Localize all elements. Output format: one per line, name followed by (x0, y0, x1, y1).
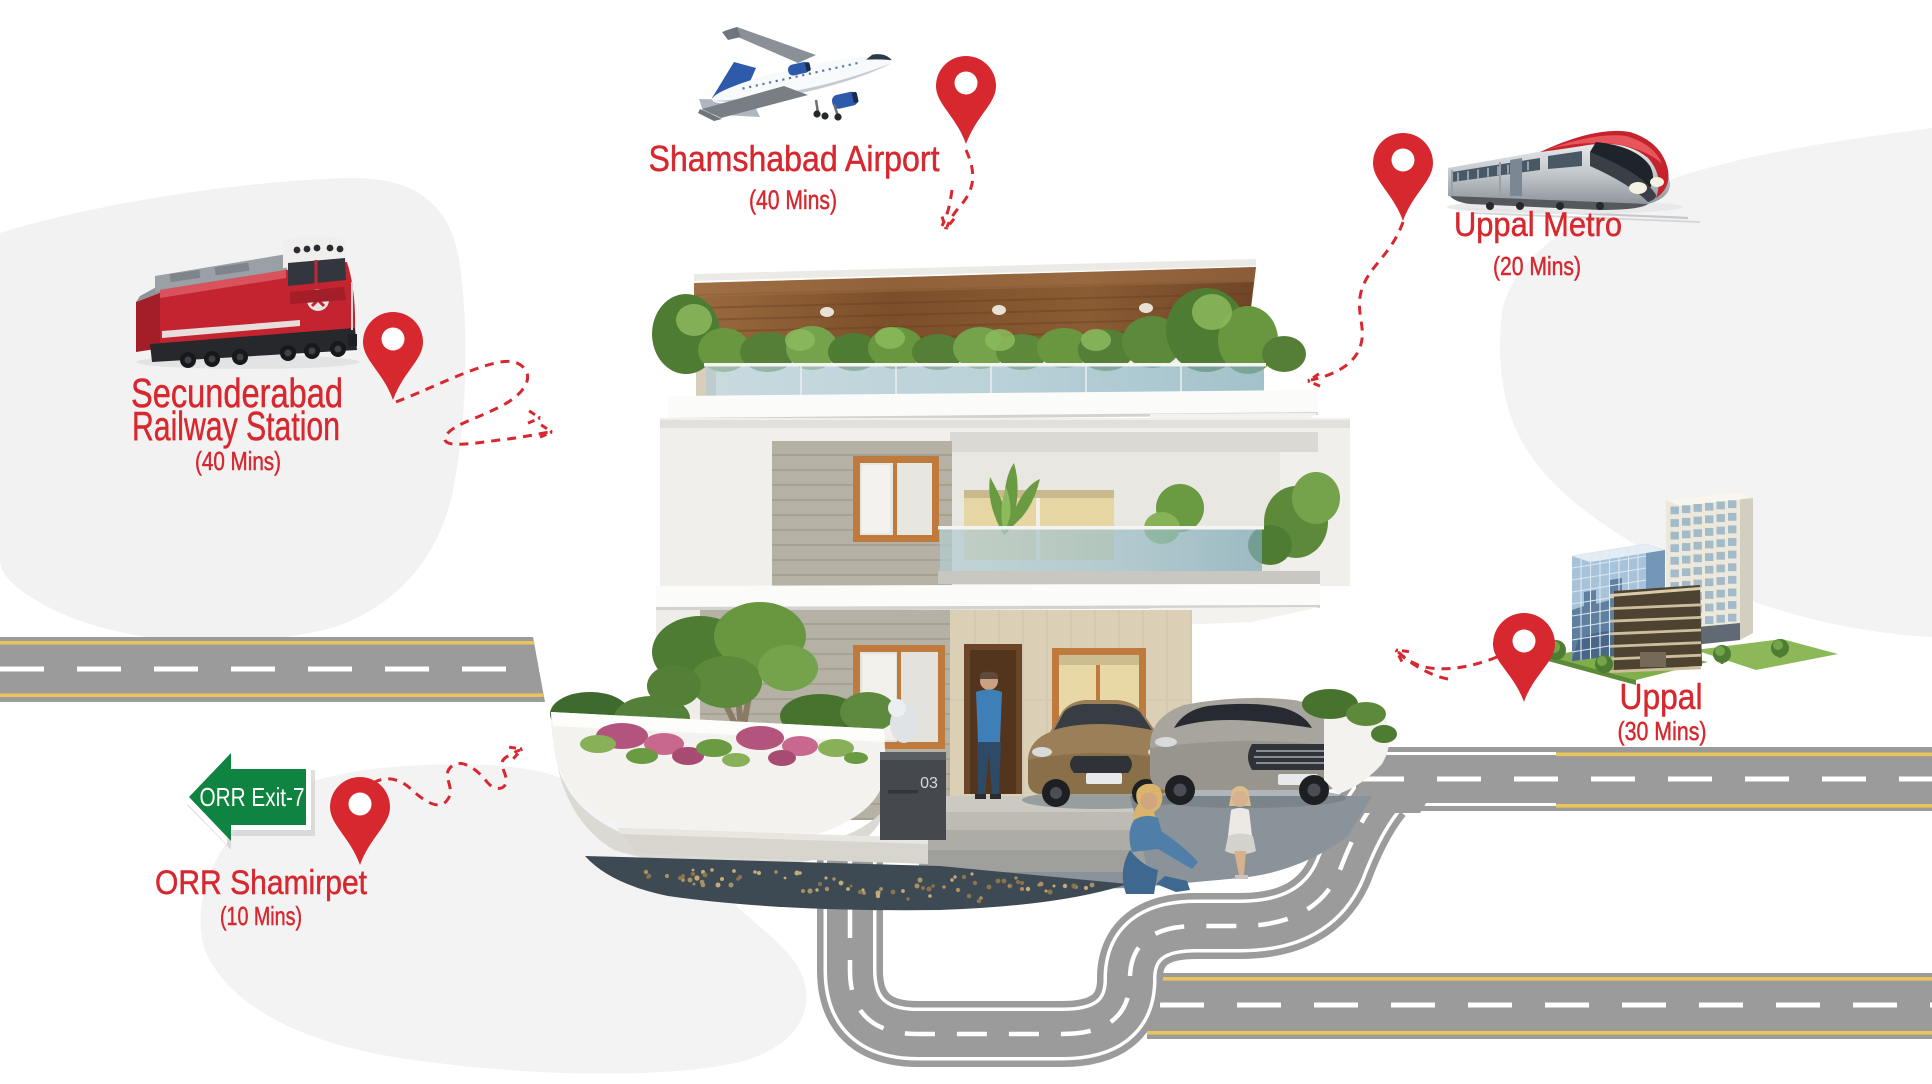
svg-text:(40 Mins): (40 Mins) (195, 446, 281, 476)
svg-text:03: 03 (920, 775, 938, 792)
svg-text:Uppal Metro: Uppal Metro (1454, 206, 1622, 244)
svg-text:ORR Exit-7: ORR Exit-7 (200, 782, 305, 812)
svg-text:(10 Mins): (10 Mins) (220, 901, 302, 931)
svg-text:Shamshabad Airport: Shamshabad Airport (649, 138, 940, 179)
svg-text:(40 Mins): (40 Mins) (749, 185, 837, 215)
svg-text:Uppal: Uppal (1620, 676, 1703, 717)
svg-text:(30 Mins): (30 Mins) (1618, 716, 1707, 746)
svg-text:ORR Shamirpet: ORR Shamirpet (155, 864, 367, 902)
svg-text:(20 Mins): (20 Mins) (1493, 251, 1581, 281)
svg-text:Railway Station: Railway Station (132, 403, 340, 449)
